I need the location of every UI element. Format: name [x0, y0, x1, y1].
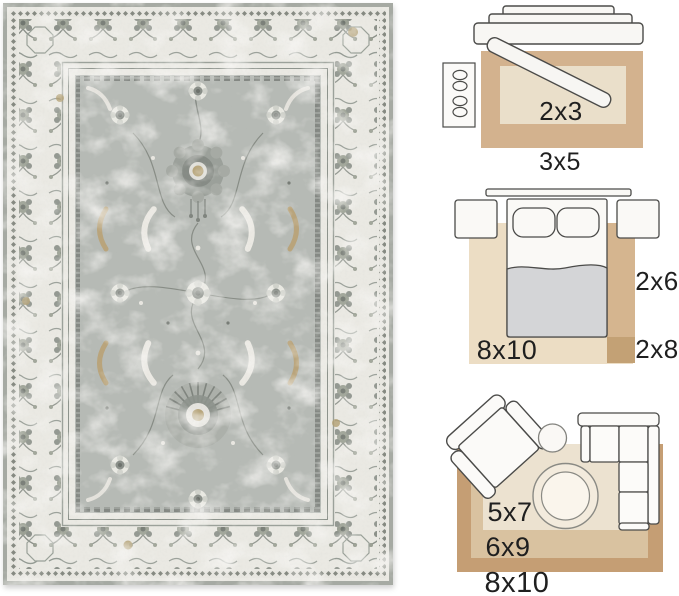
pillow-right	[557, 208, 599, 237]
size-diagram-entryway: 2x3 3x5	[430, 0, 679, 176]
size-diagram-livingroom: 5x7 6x9 8x10	[430, 393, 679, 596]
shoe-cabinet	[443, 63, 475, 127]
round-coffee-table	[533, 464, 598, 529]
label-8x10-living: 8x10	[485, 567, 550, 596]
label-2x6: 2x6	[635, 266, 678, 296]
size-diagram-bedroom: 8x10 2x6 2x8	[430, 180, 679, 372]
runner-2x8-extension	[607, 337, 635, 363]
rug-illustration	[3, 3, 393, 585]
blanket	[507, 265, 607, 337]
nightstand-left	[455, 200, 497, 238]
headboard	[486, 189, 631, 196]
label-5x7: 5x7	[487, 497, 532, 527]
label-3x5: 3x5	[539, 148, 581, 176]
label-2x3: 2x3	[539, 96, 582, 126]
label-2x8: 2x8	[635, 334, 678, 364]
rug-photo	[3, 3, 393, 585]
rug-product-image: 2x3 3x5 8x10 2x6 2x	[0, 0, 679, 596]
rug-grain-overlay	[3, 3, 393, 585]
label-8x10-bedroom: 8x10	[477, 335, 538, 365]
label-6x9: 6x9	[485, 532, 530, 562]
nightstand-right	[617, 200, 659, 238]
pillow-left	[513, 208, 555, 237]
console-table	[474, 6, 643, 44]
runner-2x6	[607, 223, 635, 337]
side-table	[539, 424, 567, 452]
